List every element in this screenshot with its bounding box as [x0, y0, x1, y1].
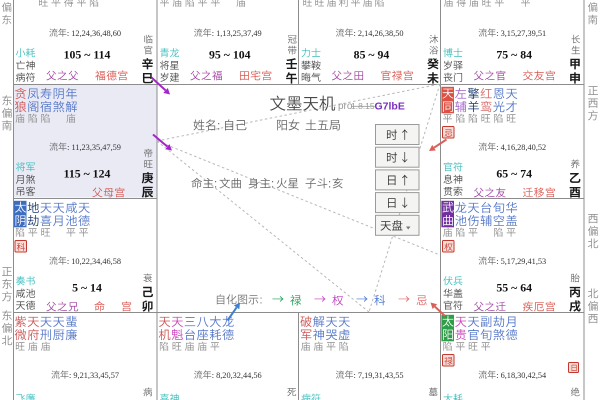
svg-text:: 12,24,36,48,60: : 12,24,36,48,60	[67, 29, 121, 38]
svg-text:: 9,21,33,45,57: : 9,21,33,45,57	[69, 371, 119, 380]
svg-text:65 ~ 74: 65 ~ 74	[496, 167, 532, 181]
svg-text::: :	[217, 119, 220, 133]
svg-text:115 ~ 124: 115 ~ 124	[64, 167, 111, 181]
svg-text::: :	[271, 179, 274, 191]
svg-text:85 ~ 94: 85 ~ 94	[354, 48, 390, 62]
svg-text:: 11,23,35,47,59: : 11,23,35,47,59	[67, 143, 121, 152]
svg-text:: 5,17,29,41,53: : 5,17,29,41,53	[496, 257, 546, 266]
svg-text:: 3,15,27,39,51: : 3,15,27,39,51	[496, 29, 546, 38]
svg-text::: :	[328, 179, 331, 191]
svg-text:5 ~ 14: 5 ~ 14	[72, 281, 102, 295]
svg-text::: :	[214, 179, 217, 191]
svg-text:: 6,18,30,42,54: : 6,18,30,42,54	[496, 371, 547, 380]
svg-text:G7lbE: G7lbE	[375, 101, 405, 113]
svg-text:: 4,16,28,40,52: : 4,16,28,40,52	[496, 143, 546, 152]
svg-text:: 10,22,34,46,58: : 10,22,34,46,58	[67, 257, 121, 266]
svg-text:: 7,19,31,43,55: : 7,19,31,43,55	[354, 371, 404, 380]
svg-text:95 ~ 104: 95 ~ 104	[209, 48, 251, 62]
svg-text:55 ~ 64: 55 ~ 64	[496, 281, 532, 295]
svg-text:: 8,20,32,44,56: : 8,20,32,44,56	[212, 371, 262, 380]
svg-text:: 2,14,26,38,50: : 2,14,26,38,50	[354, 29, 404, 38]
svg-text:75 ~ 84: 75 ~ 84	[496, 48, 532, 62]
svg-text:105 ~ 114: 105 ~ 114	[64, 48, 111, 62]
svg-text:: 1,13,25,37,49: : 1,13,25,37,49	[212, 29, 262, 38]
svg-text::: :	[260, 295, 263, 307]
svg-text:1.8.15: 1.8.15	[351, 101, 375, 111]
